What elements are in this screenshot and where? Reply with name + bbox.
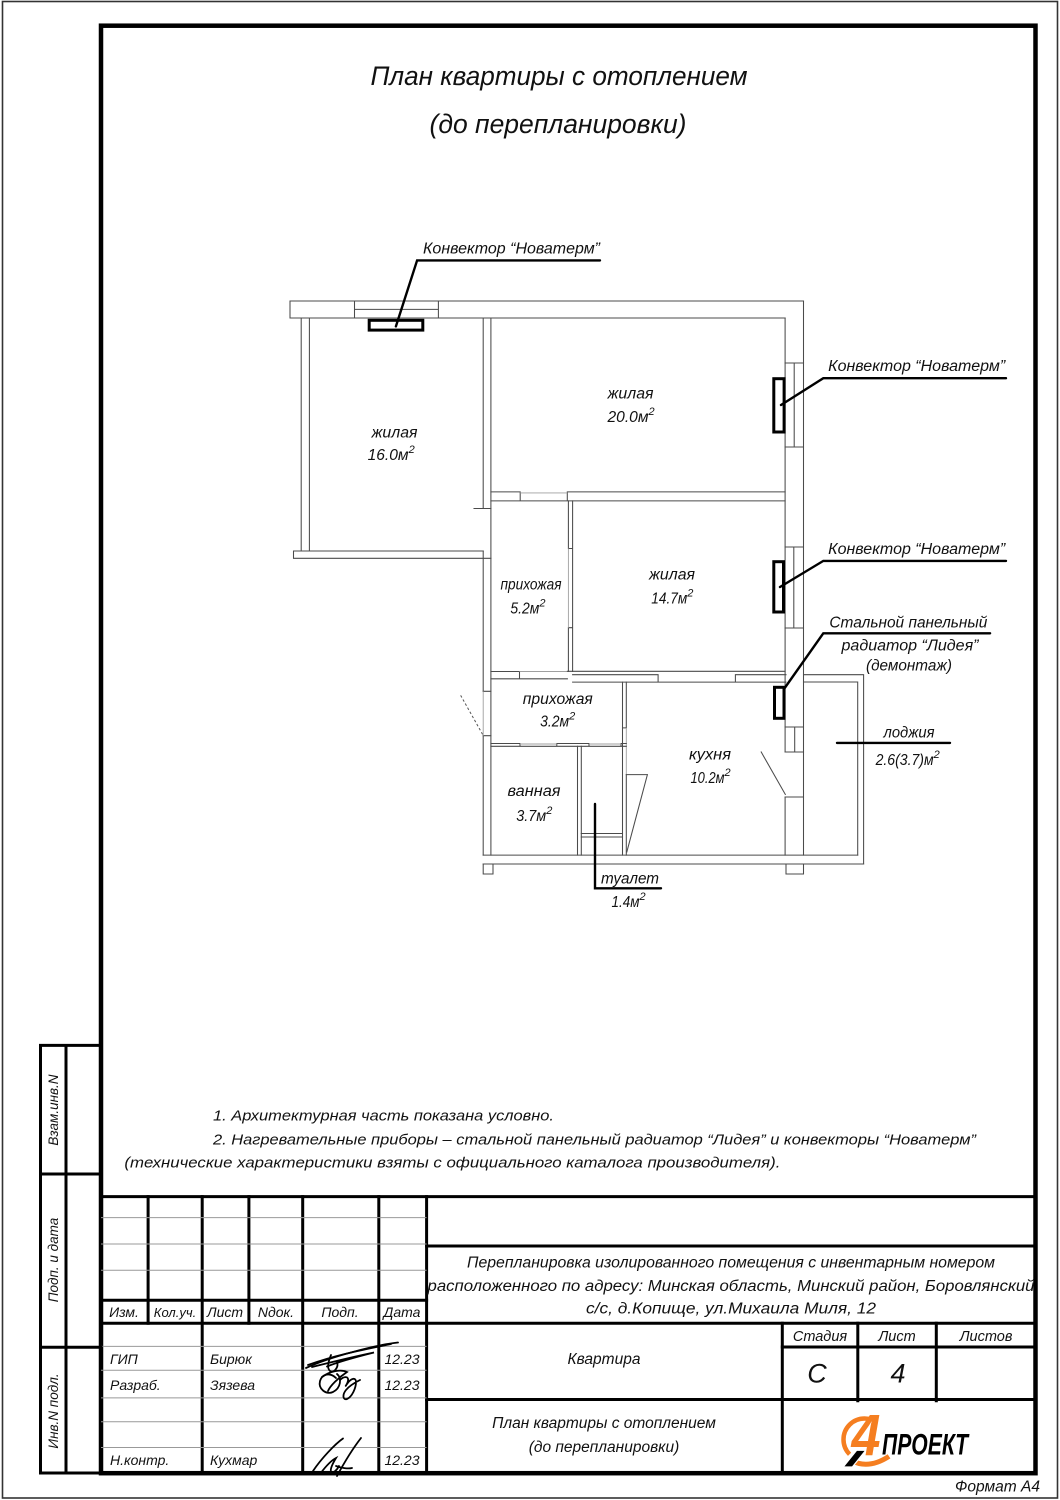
svg-text:Формат А4: Формат А4 (955, 1479, 1040, 1496)
svg-text:Перепланировка изолированного: Перепланировка изолированного помещения … (467, 1255, 995, 1272)
svg-text:12.23: 12.23 (384, 1351, 419, 1367)
svg-text:Кол.уч.: Кол.уч. (154, 1305, 196, 1320)
svg-text:ГИП: ГИП (110, 1351, 139, 1367)
svg-text:2: 2 (408, 444, 415, 456)
svg-text:1.4м: 1.4м (612, 894, 640, 911)
svg-text:Листов: Листов (959, 1329, 1013, 1345)
svg-text:2: 2 (933, 749, 940, 761)
svg-text:16.0м: 16.0м (368, 447, 409, 464)
svg-text:С: С (807, 1359, 827, 1389)
svg-text:14.7м: 14.7м (651, 591, 687, 608)
svg-text:10.2м: 10.2м (691, 770, 725, 787)
svg-text:3.2м: 3.2м (540, 714, 569, 731)
svg-text:прихожая: прихожая (523, 691, 593, 708)
svg-text:2: 2 (648, 406, 655, 418)
svg-text:Взам.инв.N: Взам.инв.N (46, 1074, 61, 1145)
svg-text:2: 2 (545, 805, 552, 817)
svg-text:жилая: жилая (648, 567, 695, 584)
svg-text:4: 4 (851, 1403, 881, 1468)
svg-text:Стадия: Стадия (793, 1329, 848, 1345)
svg-text:Конвектор “Новатерм”: Конвектор “Новатерм” (828, 541, 1006, 558)
svg-text:ПРОЕКТ: ПРОЕКТ (882, 1429, 970, 1462)
svg-text:лоджия: лоджия (883, 725, 935, 742)
svg-text:(до перепланировки): (до перепланировки) (430, 109, 687, 139)
svg-text:2: 2 (724, 767, 731, 779)
svg-text:Nдок.: Nдок. (258, 1304, 294, 1320)
svg-text:Бирюк: Бирюк (210, 1351, 253, 1367)
svg-text:(до перепланировки): (до перепланировки) (529, 1439, 680, 1456)
svg-text:12.23: 12.23 (384, 1452, 419, 1468)
svg-text:2.6(3.7)м: 2.6(3.7)м (875, 752, 934, 769)
svg-text:ванная: ванная (508, 783, 561, 800)
svg-text:жилая: жилая (370, 425, 417, 442)
svg-text:радиатор “Лидея”: радиатор “Лидея” (840, 638, 979, 655)
svg-text:12.23: 12.23 (384, 1377, 419, 1393)
svg-text:Конвектор “Новатерм”: Конвектор “Новатерм” (423, 241, 601, 258)
svg-text:Подп. и дата: Подп. и дата (46, 1217, 61, 1302)
svg-text:План квартиры с отоплением: План квартиры с отоплением (492, 1415, 716, 1432)
svg-text:2: 2 (568, 711, 575, 723)
svg-text:3.7м: 3.7м (516, 808, 546, 825)
svg-text:Лист: Лист (206, 1304, 243, 1320)
svg-text:2: 2 (538, 598, 545, 610)
svg-text:туалет: туалет (601, 871, 659, 888)
svg-text:Кухмар: Кухмар (210, 1452, 257, 1468)
svg-text:Разраб.: Разраб. (110, 1377, 161, 1393)
svg-text:кухня: кухня (689, 747, 731, 764)
svg-text:2: 2 (639, 891, 646, 903)
svg-text:Н.контр.: Н.контр. (110, 1452, 169, 1468)
svg-text:Подп.: Подп. (321, 1304, 358, 1320)
svg-text:расположенного по адресу: Минс: расположенного по адресу: Минская област… (426, 1278, 1034, 1295)
svg-text:Конвектор “Новатерм”: Конвектор “Новатерм” (828, 358, 1006, 375)
svg-text:Квартира: Квартира (568, 1351, 641, 1368)
svg-text:Лист: Лист (877, 1329, 915, 1345)
svg-text:Дата: Дата (382, 1304, 421, 1320)
svg-text:Стальной панельный: Стальной панельный (829, 615, 987, 632)
svg-text:прихожая: прихожая (501, 577, 562, 594)
svg-text:20.0м: 20.0м (606, 409, 648, 426)
svg-text:2: 2 (686, 588, 693, 600)
svg-text:2. Нагревательные приборы – ст: 2. Нагревательные приборы – стальной пан… (212, 1132, 977, 1149)
svg-text:Инв.N подл.: Инв.N подл. (46, 1373, 61, 1448)
svg-text:(демонтаж): (демонтаж) (866, 658, 952, 675)
svg-text:Изм.: Изм. (109, 1304, 139, 1320)
svg-text:с/с, д.Копище, ул.Михаила Миля: с/с, д.Копище, ул.Михаила Миля, 12 (586, 1301, 876, 1318)
svg-text:4: 4 (890, 1359, 905, 1389)
svg-text:План квартиры с отоплением: План квартиры с отоплением (371, 61, 748, 91)
svg-text:5.2м: 5.2м (510, 601, 539, 618)
svg-text:(технические характеристики вз: (технические характеристики взяты с офиц… (124, 1155, 780, 1172)
svg-text:1. Архитектурная часть показан: 1. Архитектурная часть показана условно. (213, 1108, 554, 1125)
svg-text:Зязева: Зязева (210, 1377, 255, 1393)
svg-text:жилая: жилая (606, 386, 653, 403)
